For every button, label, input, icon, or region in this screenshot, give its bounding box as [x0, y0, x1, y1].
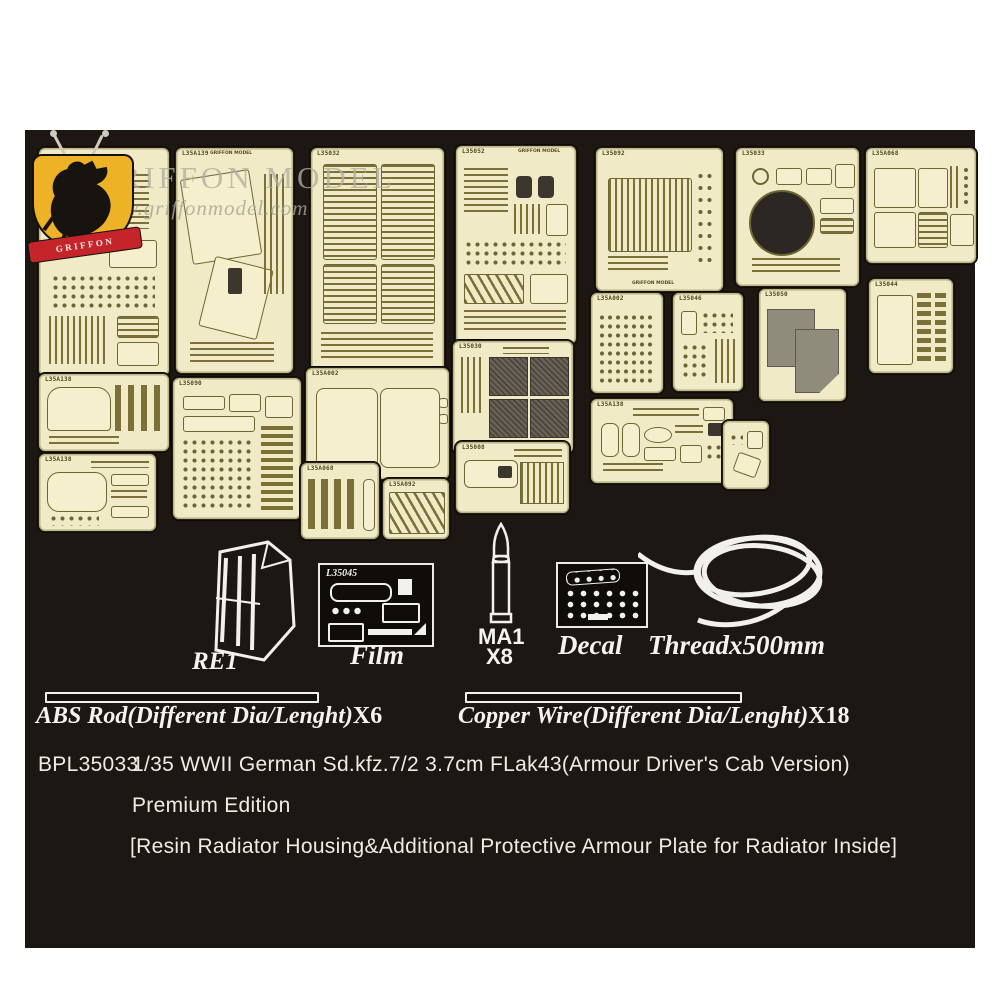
- fret-detail: [265, 396, 293, 418]
- decal-detail: [588, 614, 608, 620]
- fret-detail: [520, 462, 564, 504]
- fret-detail: [680, 445, 702, 463]
- fret-label: L35050: [765, 291, 788, 298]
- fret-detail: [681, 311, 697, 335]
- fret-detail: [806, 168, 832, 185]
- fret-detail: [261, 426, 293, 510]
- fret-detail: [380, 388, 440, 468]
- pe-fret: L35050: [758, 288, 847, 402]
- fret-label: L35A002: [312, 370, 339, 377]
- fret-detail: [622, 423, 640, 457]
- film-label: Film: [350, 640, 404, 671]
- fret-detail: [111, 474, 149, 486]
- fret-detail: [323, 264, 377, 324]
- film-detail: [382, 603, 420, 623]
- fret-detail: [729, 433, 743, 445]
- fret-detail: [820, 218, 854, 234]
- fret-label: L35A139: [182, 150, 209, 157]
- fret-detail: [530, 399, 569, 438]
- fret-detail: [439, 398, 448, 408]
- copper-wire-text: Copper Wire(Different Dia/Lenght): [458, 703, 808, 729]
- fret-label: L35A068: [872, 150, 899, 157]
- fret-detail: [49, 316, 109, 364]
- fret-detail: [183, 396, 225, 410]
- fret-label: L35A092: [389, 481, 416, 488]
- pe-fret: L35052 GRIFFON MODEL: [455, 145, 577, 345]
- pe-fret: L35A068: [865, 147, 977, 264]
- fret-detail: [229, 394, 261, 412]
- fret-detail: [877, 295, 913, 365]
- fret-detail: [115, 385, 161, 431]
- product-edition: Premium Edition: [132, 794, 291, 818]
- fret-detail: [49, 436, 119, 444]
- fret-detail: [111, 490, 147, 500]
- product-note: [Resin Radiator Housing&Additional Prote…: [130, 835, 897, 859]
- decal-detail: [566, 568, 621, 586]
- fret-detail: [530, 357, 569, 396]
- antenna-decoration: [91, 135, 103, 156]
- abs-rod-count: X6: [353, 703, 382, 729]
- fret-detail: [752, 168, 769, 185]
- fret-detail: [675, 425, 703, 434]
- fret-detail: [464, 274, 524, 304]
- fret-detail: [918, 168, 948, 208]
- fret-detail: [681, 343, 709, 381]
- thread-label: Threadx500mm: [648, 630, 825, 661]
- fret-detail: [363, 479, 375, 531]
- pe-fret: [722, 420, 770, 490]
- fret-detail: [464, 168, 508, 216]
- fret-detail: [498, 466, 512, 478]
- abs-rod-caption: ABS Rod(Different Dia/Lenght)X6: [36, 703, 382, 730]
- fret-label: L35052: [462, 148, 485, 155]
- fret-detail: [389, 492, 445, 534]
- fret-detail: [935, 293, 946, 365]
- fret-detail: [820, 198, 854, 214]
- pe-fret: L35A138: [590, 398, 734, 484]
- fret-detail: [516, 176, 532, 198]
- fret-detail: [835, 164, 855, 188]
- fret-detail: [732, 451, 761, 478]
- pe-fret: L35A002: [590, 292, 664, 394]
- fret-detail: [701, 311, 733, 333]
- fret-detail: [190, 342, 274, 362]
- pe-fret: L35046: [672, 292, 744, 392]
- film-detail: [330, 607, 364, 615]
- film-detail: [398, 579, 412, 595]
- fret-label: L35A138: [597, 401, 624, 408]
- film-sheet-label: L35045: [326, 568, 357, 579]
- fret-detail: [752, 258, 840, 276]
- fret-detail: [228, 268, 242, 294]
- fret-label: L35046: [679, 295, 702, 302]
- product-image: L35A139 GRIFFON MODEL L35032 L35052 GRIF…: [0, 0, 1000, 1000]
- fret-detail: [47, 472, 107, 512]
- fret-detail: [503, 347, 549, 354]
- fret-detail: [644, 447, 676, 461]
- fret-detail: [608, 178, 692, 252]
- product-title: 1/35 WWII German Sd.kfz.7/2 3.7cm FLak43…: [132, 753, 850, 777]
- decal-label: Decal: [558, 630, 622, 661]
- abs-rod-bar: [45, 692, 319, 703]
- film-detail: [330, 583, 392, 602]
- fret-detail: [776, 168, 802, 185]
- fret-detail: [538, 176, 554, 198]
- fret-detail: [950, 214, 974, 246]
- fret-detail: [703, 407, 725, 421]
- fret-detail: [601, 423, 619, 457]
- fret-detail: [917, 293, 931, 365]
- fret-detail: [608, 256, 668, 272]
- fret-detail: [464, 310, 566, 332]
- fret-detail: [874, 212, 916, 248]
- copper-wire-count: X18: [808, 703, 849, 729]
- pe-fret: L35008: [455, 441, 570, 514]
- fret-label: L35090: [179, 380, 202, 387]
- antenna-decoration: [102, 130, 109, 137]
- pe-fret: L35044: [868, 278, 954, 374]
- fret-detail: [715, 339, 735, 383]
- thread-coil-drawing: [638, 524, 844, 636]
- fret-detail: [603, 463, 663, 475]
- fret-detail: [633, 408, 699, 417]
- maker-mark: GRIFFON MODEL: [518, 149, 560, 154]
- film-detail: [414, 623, 426, 635]
- fret-label: L35A138: [45, 456, 72, 463]
- fret-detail: [598, 313, 656, 383]
- fret-label: L35A068: [307, 465, 334, 472]
- fret-detail: [514, 449, 562, 457]
- fret-label: L35033: [742, 150, 765, 157]
- fret-detail: [461, 357, 483, 413]
- fret-detail: [644, 427, 672, 443]
- film-detail: [368, 629, 412, 635]
- pe-fret: L35A138: [38, 453, 157, 532]
- fret-detail: [546, 204, 568, 236]
- fret-detail: [749, 190, 815, 256]
- fret-detail: [181, 438, 253, 510]
- fret-detail: [514, 204, 540, 234]
- copper-wire-bar: [465, 692, 742, 703]
- fret-detail: [316, 388, 378, 468]
- fret-detail: [117, 316, 159, 338]
- copper-wire-caption: Copper Wire(Different Dia/Lenght)X18: [458, 703, 850, 730]
- pe-fret: L35A092: [382, 478, 450, 540]
- fret-label: L35044: [875, 281, 898, 288]
- product-sku: BPL35033: [38, 753, 139, 777]
- maker-mark: GRIFFON MODEL: [210, 151, 252, 156]
- fret-label: L35A002: [597, 295, 624, 302]
- decal-sheet: [556, 562, 648, 628]
- antenna-decoration: [50, 130, 57, 137]
- fret-detail: [950, 166, 960, 208]
- fret-detail: [747, 431, 763, 449]
- fret-detail: [439, 414, 448, 424]
- maker-mark: GRIFFON MODEL: [632, 281, 674, 286]
- abs-rod-text: ABS Rod(Different Dia/Lenght): [36, 703, 353, 729]
- fret-detail: [874, 168, 916, 208]
- fret-detail: [489, 357, 528, 396]
- fret-detail: [47, 387, 111, 431]
- fret-detail: [91, 461, 149, 468]
- pe-fret: L35090: [172, 377, 302, 520]
- fret-label: L35030: [459, 343, 482, 350]
- fret-detail: [321, 332, 433, 358]
- re1-label: RE1: [192, 648, 238, 676]
- fret-label: L35092: [602, 150, 625, 157]
- fret-detail: [530, 274, 568, 304]
- fret-label: L35A138: [45, 376, 72, 383]
- pe-fret: L35A068: [300, 462, 380, 540]
- pe-fret: L35A138: [38, 373, 170, 452]
- fret-detail: [111, 506, 149, 518]
- pe-fret: L35030: [452, 340, 574, 454]
- fret-label: L35032: [317, 150, 340, 157]
- fret-detail: [308, 479, 360, 529]
- fret-detail: [464, 240, 566, 266]
- fret-detail: [918, 212, 948, 248]
- antenna-decoration: [53, 135, 66, 156]
- fret-detail: [795, 329, 839, 393]
- fret-detail: [962, 166, 972, 208]
- fret-detail: [183, 416, 255, 432]
- fret-detail: [49, 514, 99, 526]
- ma1-shell-drawing: [484, 522, 518, 628]
- pe-fret: L35033: [735, 147, 860, 287]
- fret-detail: [489, 399, 528, 438]
- fret-label: L35008: [462, 444, 485, 451]
- film-sheet: L35045: [318, 563, 434, 647]
- griffon-crest-logo: GRIFFON: [28, 138, 140, 268]
- fret-detail: [117, 342, 159, 366]
- fret-detail: [51, 274, 155, 308]
- fret-detail: [381, 264, 435, 324]
- ma1-qty-label: X8: [486, 644, 513, 670]
- fret-detail: [696, 170, 714, 266]
- pe-fret: L35092 GRIFFON MODEL: [595, 147, 724, 292]
- re1-resin-radiator-drawing: [186, 538, 312, 666]
